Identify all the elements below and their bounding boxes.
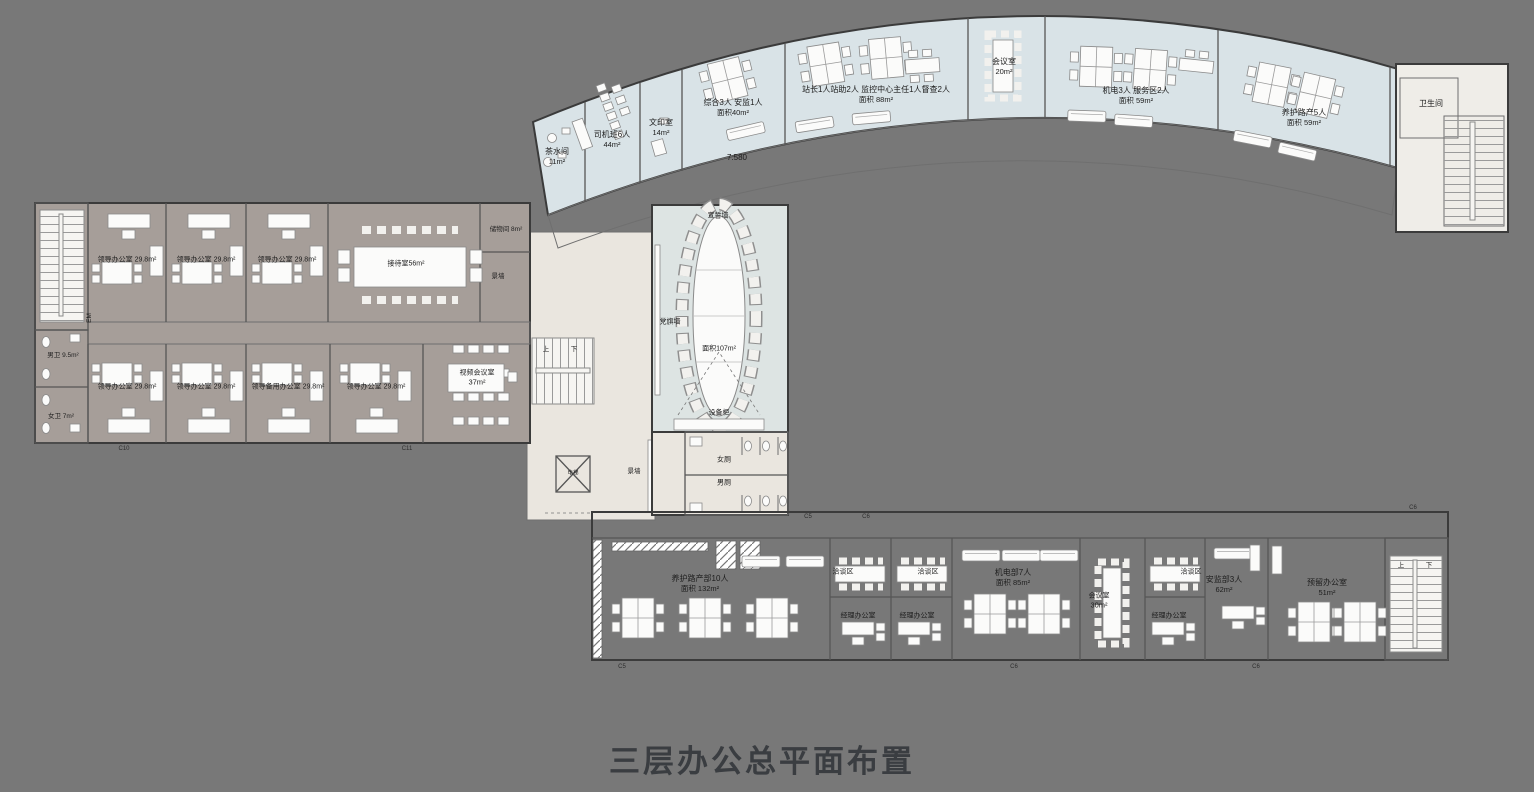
stair-up-label-south: 上: [1398, 562, 1405, 570]
room-label-leader-office-4: 领导办公室 29.8m²: [98, 382, 157, 391]
room-label-manager-office-1: 经理办公室: [841, 611, 876, 620]
room-label-leader-office-5: 领导办公室 29.8m²: [177, 382, 236, 391]
room-label-driver-team: 司机班6人44m²: [594, 130, 630, 150]
room-label-reception-room: 接待室56m²: [388, 259, 425, 268]
room-label-wc-female-west: 女卫 7m²: [48, 413, 74, 421]
stair-down-label-plaza: 下: [571, 346, 578, 354]
room-label-wc-male-west: 男卫 9.5m²: [47, 352, 78, 360]
level-mark: 7.580: [727, 153, 747, 163]
room-label-manager-office-3: 经理办公室: [1152, 611, 1187, 620]
room-label-leader-office-2: 领导办公室 29.8m²: [177, 255, 236, 264]
room-label-maintenance-dept: 养护路产部10人面积 132m²: [672, 574, 729, 594]
room-label-manager-office-2: 经理办公室: [900, 611, 935, 620]
elevator-label: 电梯: [567, 470, 578, 477]
central-plaza: [527, 232, 657, 520]
plan-title: 三层办公总平面布置: [609, 736, 915, 781]
west-wing: [35, 203, 530, 443]
room-label-mech-elec-office: 机电3人 服务区2人面积 59m²: [1102, 86, 1169, 106]
room-label-leader-office-3: 领导办公室 29.8m²: [258, 255, 317, 264]
room-label-tea-room: 茶水间11m²: [545, 147, 569, 167]
north-stair-block: [1396, 64, 1508, 232]
grid-label-4: C5: [618, 664, 626, 670]
room-label-safety-dept: 安监部3人62m²: [1206, 575, 1242, 595]
room-label-video-conference: 视频会议室37m²: [460, 369, 495, 388]
wc-female-label: 女厕: [717, 455, 731, 464]
oath-wall-label: 宣誓墙: [708, 211, 729, 220]
grid-label-7: C6: [1409, 505, 1417, 511]
room-label-mech-elec-dept: 机电部7人面积 85m²: [995, 568, 1031, 588]
grid-label-6: C6: [1252, 664, 1260, 670]
grid-label-2: C5: [804, 514, 812, 520]
room-label-storage-room: 储物间 8m²: [490, 226, 523, 234]
wc-male-label: 男厕: [717, 478, 731, 487]
stair-up-label-plaza: 上: [543, 346, 550, 354]
room-label-leader-spare-office: 领导备用办公室 29.8m²: [252, 382, 325, 391]
core-toilets: [652, 432, 788, 515]
grid-label-3: C6: [862, 514, 870, 520]
stair-down-label-south: 下: [1426, 562, 1433, 570]
room-label-maintenance-5: 养护路产5人面积 59m²: [1282, 108, 1326, 128]
room-label-leader-office-1: 领导办公室 29.8m²: [98, 255, 157, 264]
room-label-meeting-room-30: 会议室30m²: [1089, 592, 1110, 611]
room-label-general-safety-office: 综合3人 安监1人面积40m²: [703, 98, 762, 118]
room-label-negotiation-3: 洽谈区: [1181, 567, 1202, 576]
scene-wall-label: 景墙: [628, 468, 641, 476]
grid-label-0: C10: [118, 446, 129, 452]
room-label-negotiation-2: 洽谈区: [918, 567, 939, 576]
grid-label-1: C11: [402, 446, 413, 452]
em-mark: EM: [86, 313, 94, 323]
hall-area-label: 面积107m²: [702, 344, 736, 353]
equipment-cabinet-label: 设备柜: [709, 408, 730, 417]
room-label-negotiation-1: 洽谈区: [833, 567, 854, 576]
flag-wall-label: 党旗墙: [660, 317, 681, 326]
room-label-leader-office-6: 领导办公室 29.8m²: [347, 382, 406, 391]
room-label-meeting-room-20: 会议室20m²: [992, 57, 1016, 77]
floorplan-canvas: 茶水间11m² 司机班6人44m² 文印室14m² 综合3人 安监1人面积40m…: [0, 0, 1534, 792]
room-label-reserved-office: 预留办公室51m²: [1307, 578, 1347, 598]
room-label-print-room: 文印室14m²: [649, 118, 673, 138]
grid-label-5: C6: [1010, 664, 1018, 670]
scene-wall-west-label: 景墙: [492, 273, 505, 281]
room-label-restroom-north: 卫生间: [1419, 99, 1443, 109]
room-label-station-chief-office: 站长1人站助2人 监控中心主任1人督查2人面积 88m²: [802, 85, 950, 105]
